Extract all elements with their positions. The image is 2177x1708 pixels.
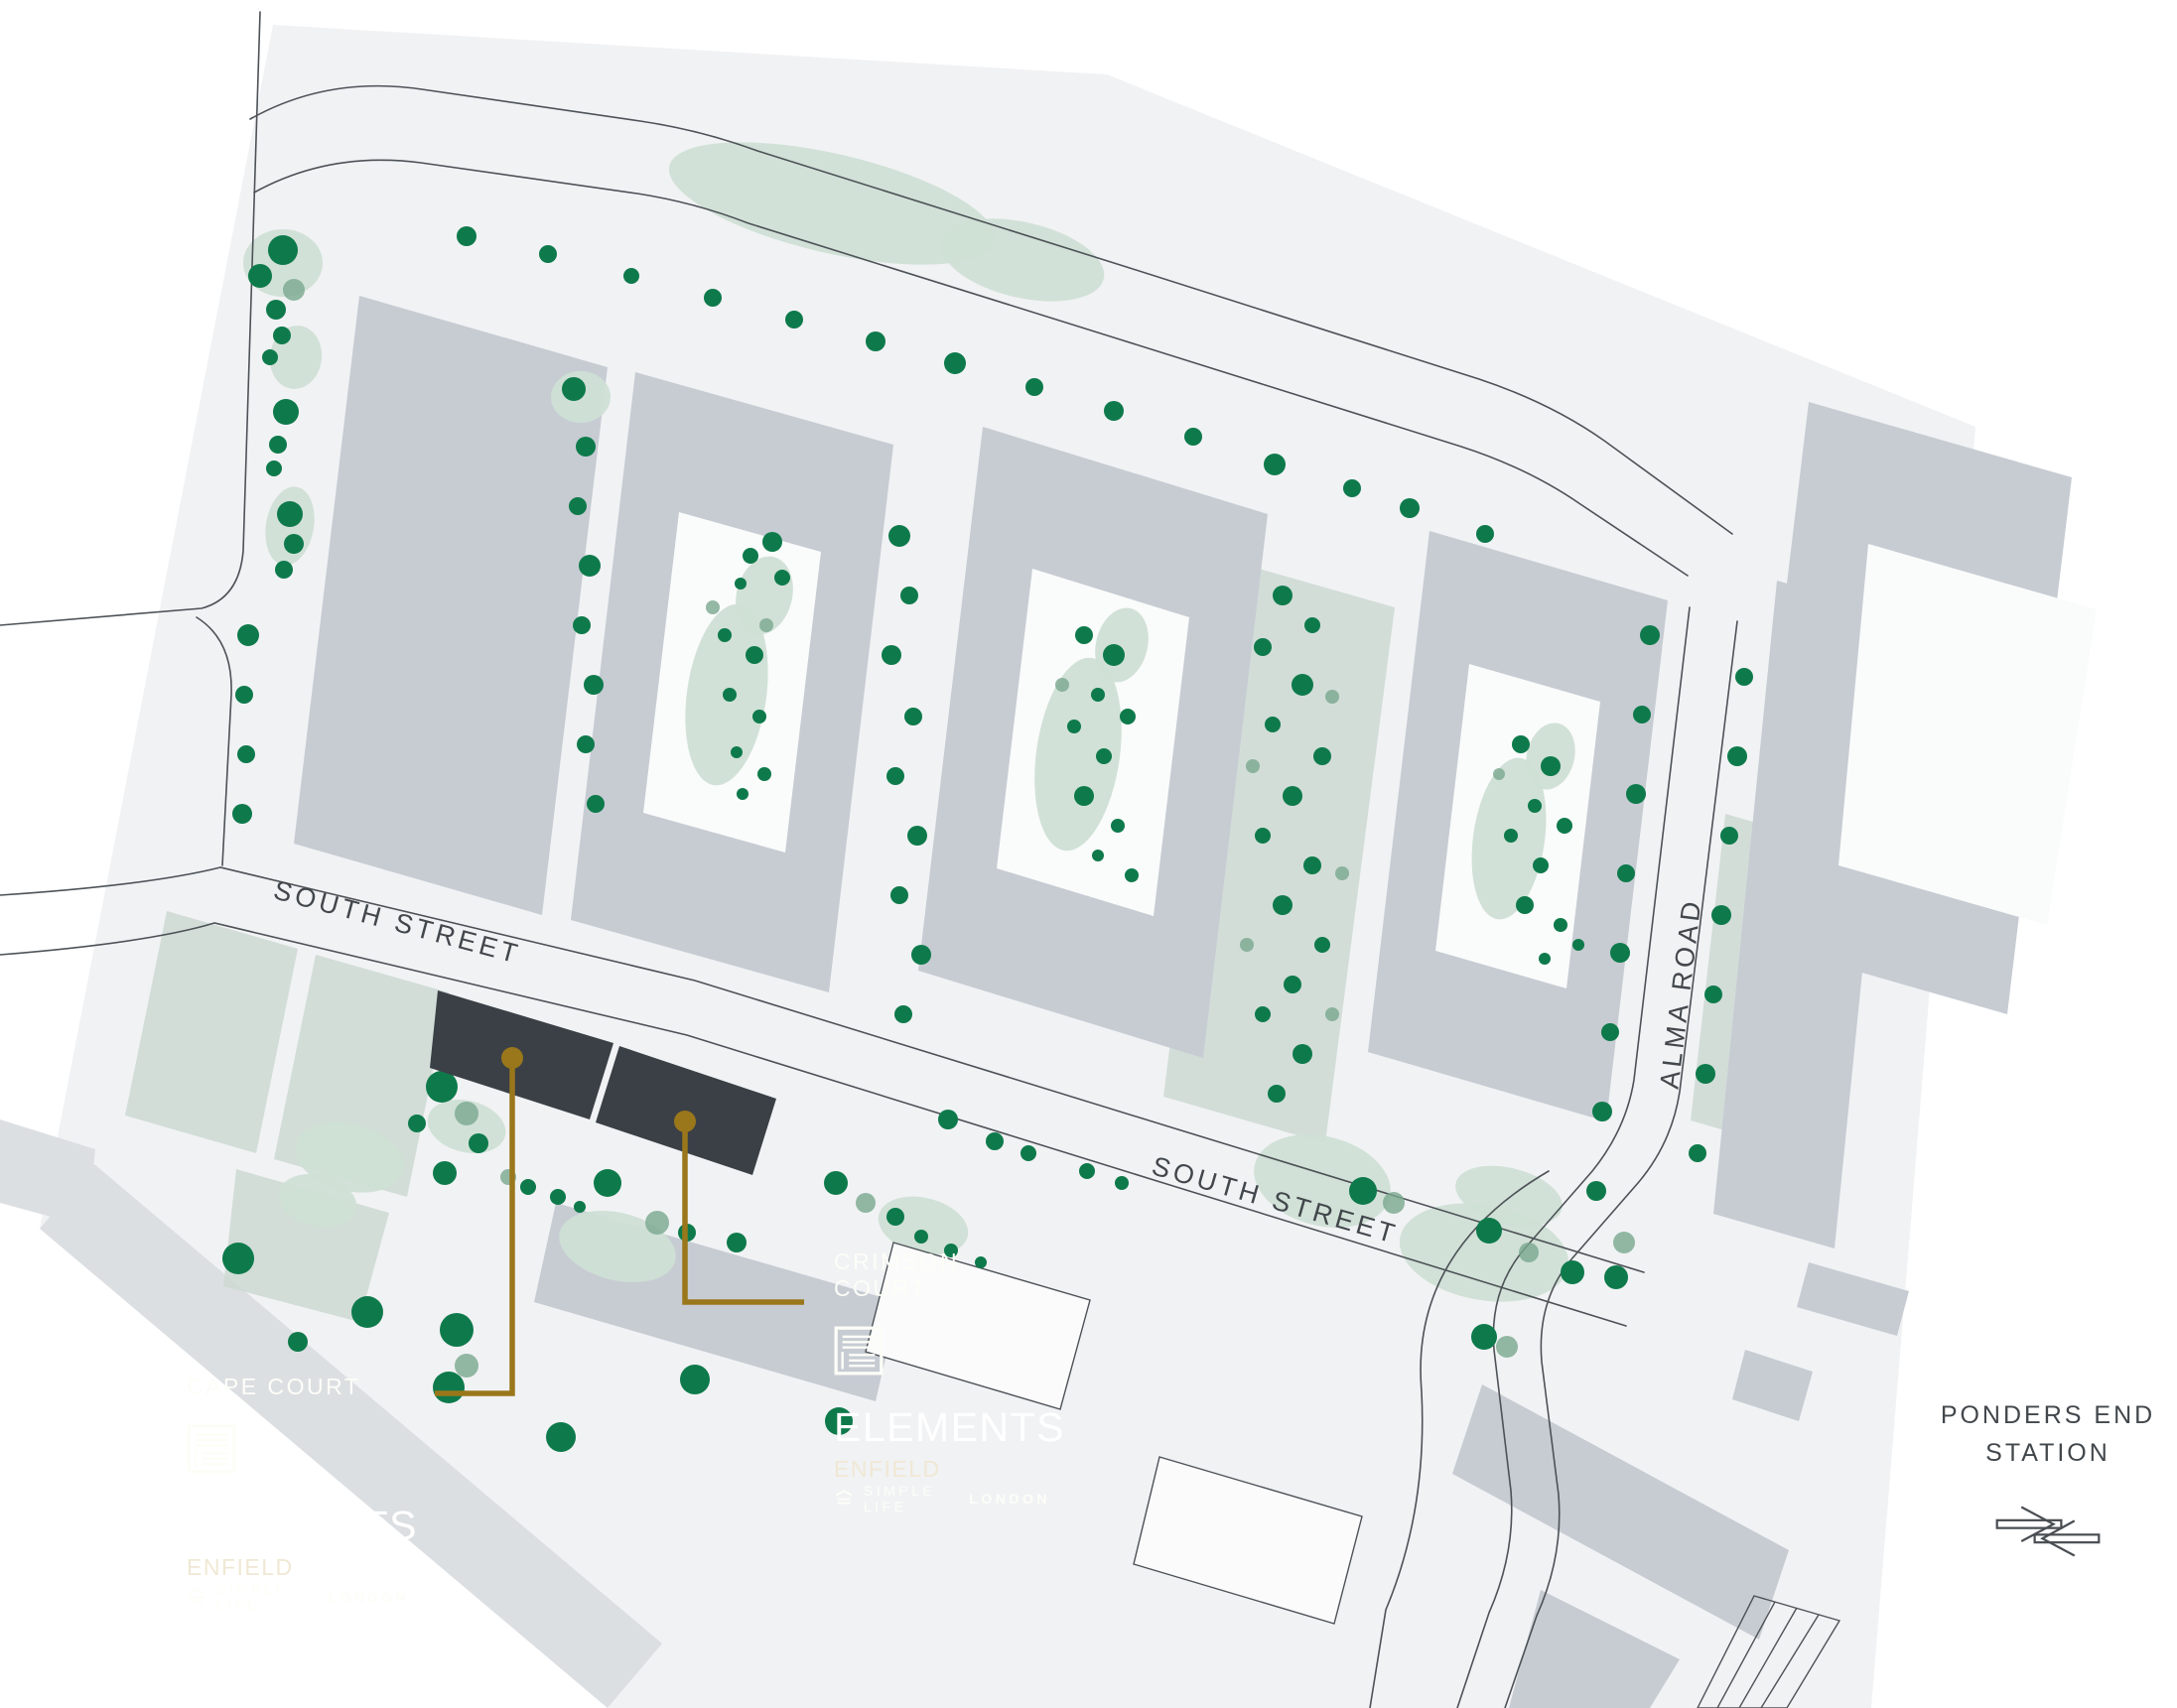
tree-marker: [1519, 1243, 1539, 1262]
tree-marker: [1610, 943, 1630, 963]
tree-marker: [576, 437, 596, 457]
tree-marker: [1067, 720, 1081, 733]
tree-marker: [774, 570, 790, 586]
crimson-court-connector-dot: [674, 1111, 696, 1132]
tree-marker: [1592, 1102, 1612, 1121]
tree-marker: [1640, 625, 1660, 645]
tree-marker: [735, 578, 747, 590]
tree-marker: [1020, 1145, 1036, 1161]
tree-marker: [1533, 857, 1549, 873]
tree-marker: [1613, 1232, 1635, 1253]
tree-marker: [232, 804, 252, 824]
crimson-court-card: CRIMSON COURT ELEMENTS ENFIELD SIMPLE LI…: [804, 1219, 1080, 1481]
tree-marker: [1689, 1144, 1706, 1162]
station-line1: PONDERS END: [1934, 1397, 2162, 1435]
simple-life-brand: SIMPLE LIFE LONDON: [834, 1483, 1050, 1514]
tree-marker: [731, 746, 743, 758]
tree-marker: [277, 501, 303, 527]
tree-marker: [944, 352, 966, 374]
tree-marker: [1255, 1006, 1271, 1022]
crimson-court-project: ELEMENTS: [834, 1404, 1050, 1451]
ponders-end-station-label: PONDERS END STATION: [1934, 1397, 2162, 1571]
tree-marker: [426, 1071, 458, 1103]
cape-court-title: CAPE COURT: [187, 1374, 409, 1400]
tree-marker: [351, 1296, 383, 1328]
tree-marker: [550, 1189, 566, 1205]
tree-marker: [757, 767, 771, 781]
tree-marker: [222, 1243, 254, 1274]
tree-marker: [1504, 829, 1518, 843]
tree-marker: [1096, 748, 1112, 764]
tree-marker: [1727, 746, 1747, 766]
simple-life-logo-icon: [187, 1587, 206, 1608]
tree-marker: [1604, 1265, 1628, 1289]
tree-marker: [1284, 976, 1301, 993]
crimson-court-title: CRIMSON COURT: [834, 1248, 1050, 1302]
tree-marker: [623, 268, 639, 284]
tree-marker: [235, 686, 253, 704]
tree-marker: [573, 616, 591, 634]
cape-court-card: CAPE COURT ELEMENTS ENFIELD SIMPLE LIFE …: [157, 1344, 439, 1610]
courtyard: [1838, 544, 2097, 925]
tree-marker: [1255, 828, 1271, 844]
tree-marker: [680, 1365, 710, 1394]
tree-marker: [1246, 759, 1260, 773]
tree-marker: [1512, 735, 1530, 753]
tree-marker: [268, 235, 298, 265]
tree-marker: [469, 1133, 488, 1153]
tree-marker: [888, 525, 910, 547]
tree-marker: [824, 1171, 848, 1195]
brand-simple-life: SIMPLE LIFE: [216, 1581, 318, 1613]
tree-marker: [1349, 1177, 1377, 1205]
tree-marker: [894, 1005, 912, 1023]
tree-marker: [1273, 586, 1293, 605]
tree-marker: [1735, 668, 1753, 686]
tree-marker: [266, 300, 286, 320]
tree-marker: [785, 311, 803, 328]
tree-marker: [1335, 866, 1349, 880]
tree-marker: [866, 331, 885, 351]
tree-marker: [248, 264, 272, 288]
brand-simple-life: SIMPLE LIFE: [864, 1483, 959, 1514]
tree-marker: [1496, 1336, 1518, 1358]
tree-marker: [1617, 864, 1635, 882]
tree-marker: [723, 688, 737, 702]
tree-marker: [743, 548, 758, 564]
tree-marker: [455, 1354, 478, 1378]
tree-marker: [856, 1193, 876, 1213]
simple-life-brand: SIMPLE LIFE LONDON: [187, 1581, 409, 1613]
tree-marker: [1184, 428, 1202, 446]
tree-marker: [1268, 1085, 1286, 1103]
tree-marker: [1103, 644, 1125, 666]
tree-marker: [1303, 856, 1321, 874]
tree-marker: [752, 710, 766, 723]
tree-marker: [1240, 938, 1254, 952]
tree-marker: [1557, 818, 1572, 834]
tree-marker: [704, 289, 722, 307]
tree-marker: [1325, 1007, 1339, 1021]
brand-london: LONDON: [969, 1491, 1050, 1507]
tree-marker: [1343, 479, 1361, 497]
tree-marker: [587, 795, 605, 813]
tree-marker: [1471, 1324, 1497, 1350]
tree-marker: [594, 1169, 621, 1197]
tree-marker: [1554, 918, 1567, 932]
tree-marker: [1400, 498, 1420, 518]
cape-court-project: ELEMENTS: [187, 1503, 409, 1549]
tree-marker: [273, 327, 291, 344]
tree-marker: [584, 675, 604, 695]
tree-marker: [1264, 454, 1286, 475]
tree-marker: [1079, 1163, 1095, 1179]
tree-marker: [911, 945, 931, 965]
tree-marker: [907, 826, 927, 846]
national-rail-icon: [1934, 1504, 2162, 1571]
tree-marker: [1314, 937, 1330, 953]
tree-marker: [645, 1211, 669, 1235]
tree-marker: [1493, 768, 1505, 780]
tree-marker: [273, 399, 299, 425]
tree-marker: [1265, 717, 1281, 732]
tree-marker: [569, 497, 587, 515]
tree-marker: [762, 532, 782, 552]
station-line2: STATION: [1934, 1435, 2162, 1473]
tree-marker: [706, 600, 720, 614]
tree-marker: [1626, 784, 1646, 804]
tree-marker: [579, 555, 601, 577]
tree-marker: [1092, 850, 1104, 861]
tree-marker: [539, 245, 557, 263]
tree-marker: [1704, 985, 1722, 1003]
tree-marker: [938, 1110, 958, 1129]
tree-marker: [284, 534, 304, 554]
tree-marker: [1120, 709, 1136, 724]
tree-marker: [1115, 1176, 1129, 1190]
tree-marker: [1633, 706, 1651, 723]
tree-marker: [433, 1161, 457, 1185]
tree-marker: [1091, 688, 1105, 702]
tree-marker: [986, 1132, 1004, 1150]
tree-marker: [1541, 756, 1561, 776]
tree-marker: [262, 349, 278, 365]
tree-marker: [1586, 1181, 1606, 1201]
brand-london: LONDON: [328, 1589, 409, 1605]
tree-marker: [562, 377, 586, 401]
tree-marker: [727, 1233, 747, 1252]
tree-marker: [1383, 1192, 1405, 1214]
tree-marker: [1720, 827, 1738, 845]
tree-marker: [1539, 953, 1551, 965]
tree-marker: [718, 628, 732, 642]
tree-marker: [1055, 678, 1069, 692]
tree-marker: [1601, 1023, 1619, 1041]
tree-marker: [1104, 401, 1124, 421]
tree-marker: [520, 1179, 536, 1195]
tree-marker: [1075, 626, 1093, 644]
simple-life-logo-icon: [834, 1489, 854, 1510]
tree-marker: [1528, 799, 1542, 813]
tree-marker: [1325, 690, 1339, 704]
tree-marker: [269, 436, 287, 454]
tree-marker: [408, 1115, 426, 1132]
tree-marker: [900, 587, 918, 604]
tree-marker: [275, 561, 293, 579]
tree-marker: [440, 1313, 474, 1347]
tree-marker: [1711, 905, 1731, 925]
tree-marker: [1561, 1260, 1584, 1284]
tree-marker: [1111, 819, 1125, 833]
tree-marker: [759, 618, 773, 632]
tree-marker: [886, 767, 904, 785]
tree-marker: [1476, 1218, 1502, 1244]
tree-marker: [455, 1102, 478, 1125]
cape-court-connector-dot: [501, 1047, 523, 1069]
tree-marker: [1273, 895, 1293, 915]
tree-marker: [237, 745, 255, 763]
tree-marker: [746, 646, 763, 664]
tree-marker: [904, 708, 922, 725]
tree-marker: [1696, 1064, 1715, 1084]
tree-marker: [1283, 786, 1302, 806]
tree-marker: [1313, 747, 1331, 765]
tree-marker: [1572, 939, 1584, 951]
tree-marker: [1293, 1044, 1312, 1064]
tree-marker: [577, 735, 595, 753]
cape-court-location: ENFIELD: [187, 1554, 409, 1581]
tree-marker: [237, 624, 259, 646]
tree-marker: [1025, 378, 1043, 396]
tree-marker: [737, 788, 748, 800]
tree-marker: [266, 460, 282, 476]
tree-marker: [1304, 617, 1320, 633]
elements-logo-icon: [187, 1424, 409, 1479]
tree-marker: [1516, 896, 1534, 914]
elements-logo-icon: [834, 1326, 1050, 1380]
tree-marker: [283, 279, 305, 301]
tree-marker: [457, 226, 476, 246]
tree-marker: [1476, 525, 1494, 543]
tree-marker: [1074, 786, 1094, 806]
tree-marker: [882, 645, 901, 665]
tree-marker: [1254, 638, 1272, 656]
tree-marker: [1125, 868, 1139, 882]
tree-marker: [1292, 674, 1313, 696]
tree-marker: [546, 1422, 576, 1452]
crimson-court-location: ENFIELD: [834, 1456, 1050, 1483]
tree-marker: [574, 1201, 586, 1213]
tree-marker: [890, 886, 908, 904]
